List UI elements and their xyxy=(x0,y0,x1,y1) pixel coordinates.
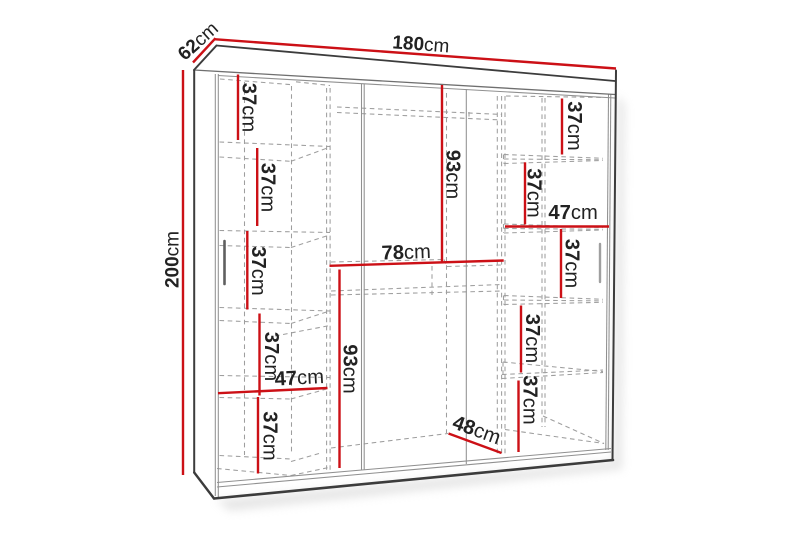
svg-text:47cm: 47cm xyxy=(274,366,324,391)
svg-text:37cm: 37cm xyxy=(563,101,585,150)
svg-text:180cm: 180cm xyxy=(392,32,450,57)
svg-text:37cm: 37cm xyxy=(519,375,541,424)
svg-text:200cm: 200cm xyxy=(162,231,183,288)
svg-text:37cm: 37cm xyxy=(521,314,543,363)
svg-text:37cm: 37cm xyxy=(247,246,269,295)
svg-text:93cm: 93cm xyxy=(339,344,361,393)
svg-text:37cm: 37cm xyxy=(257,163,279,212)
svg-text:78cm: 78cm xyxy=(381,241,431,265)
svg-text:37cm: 37cm xyxy=(259,411,281,460)
svg-text:37cm: 37cm xyxy=(238,83,260,132)
svg-text:47cm: 47cm xyxy=(548,202,597,224)
svg-text:93cm: 93cm xyxy=(442,150,464,199)
svg-text:37cm: 37cm xyxy=(523,168,545,217)
svg-text:37cm: 37cm xyxy=(561,239,583,288)
